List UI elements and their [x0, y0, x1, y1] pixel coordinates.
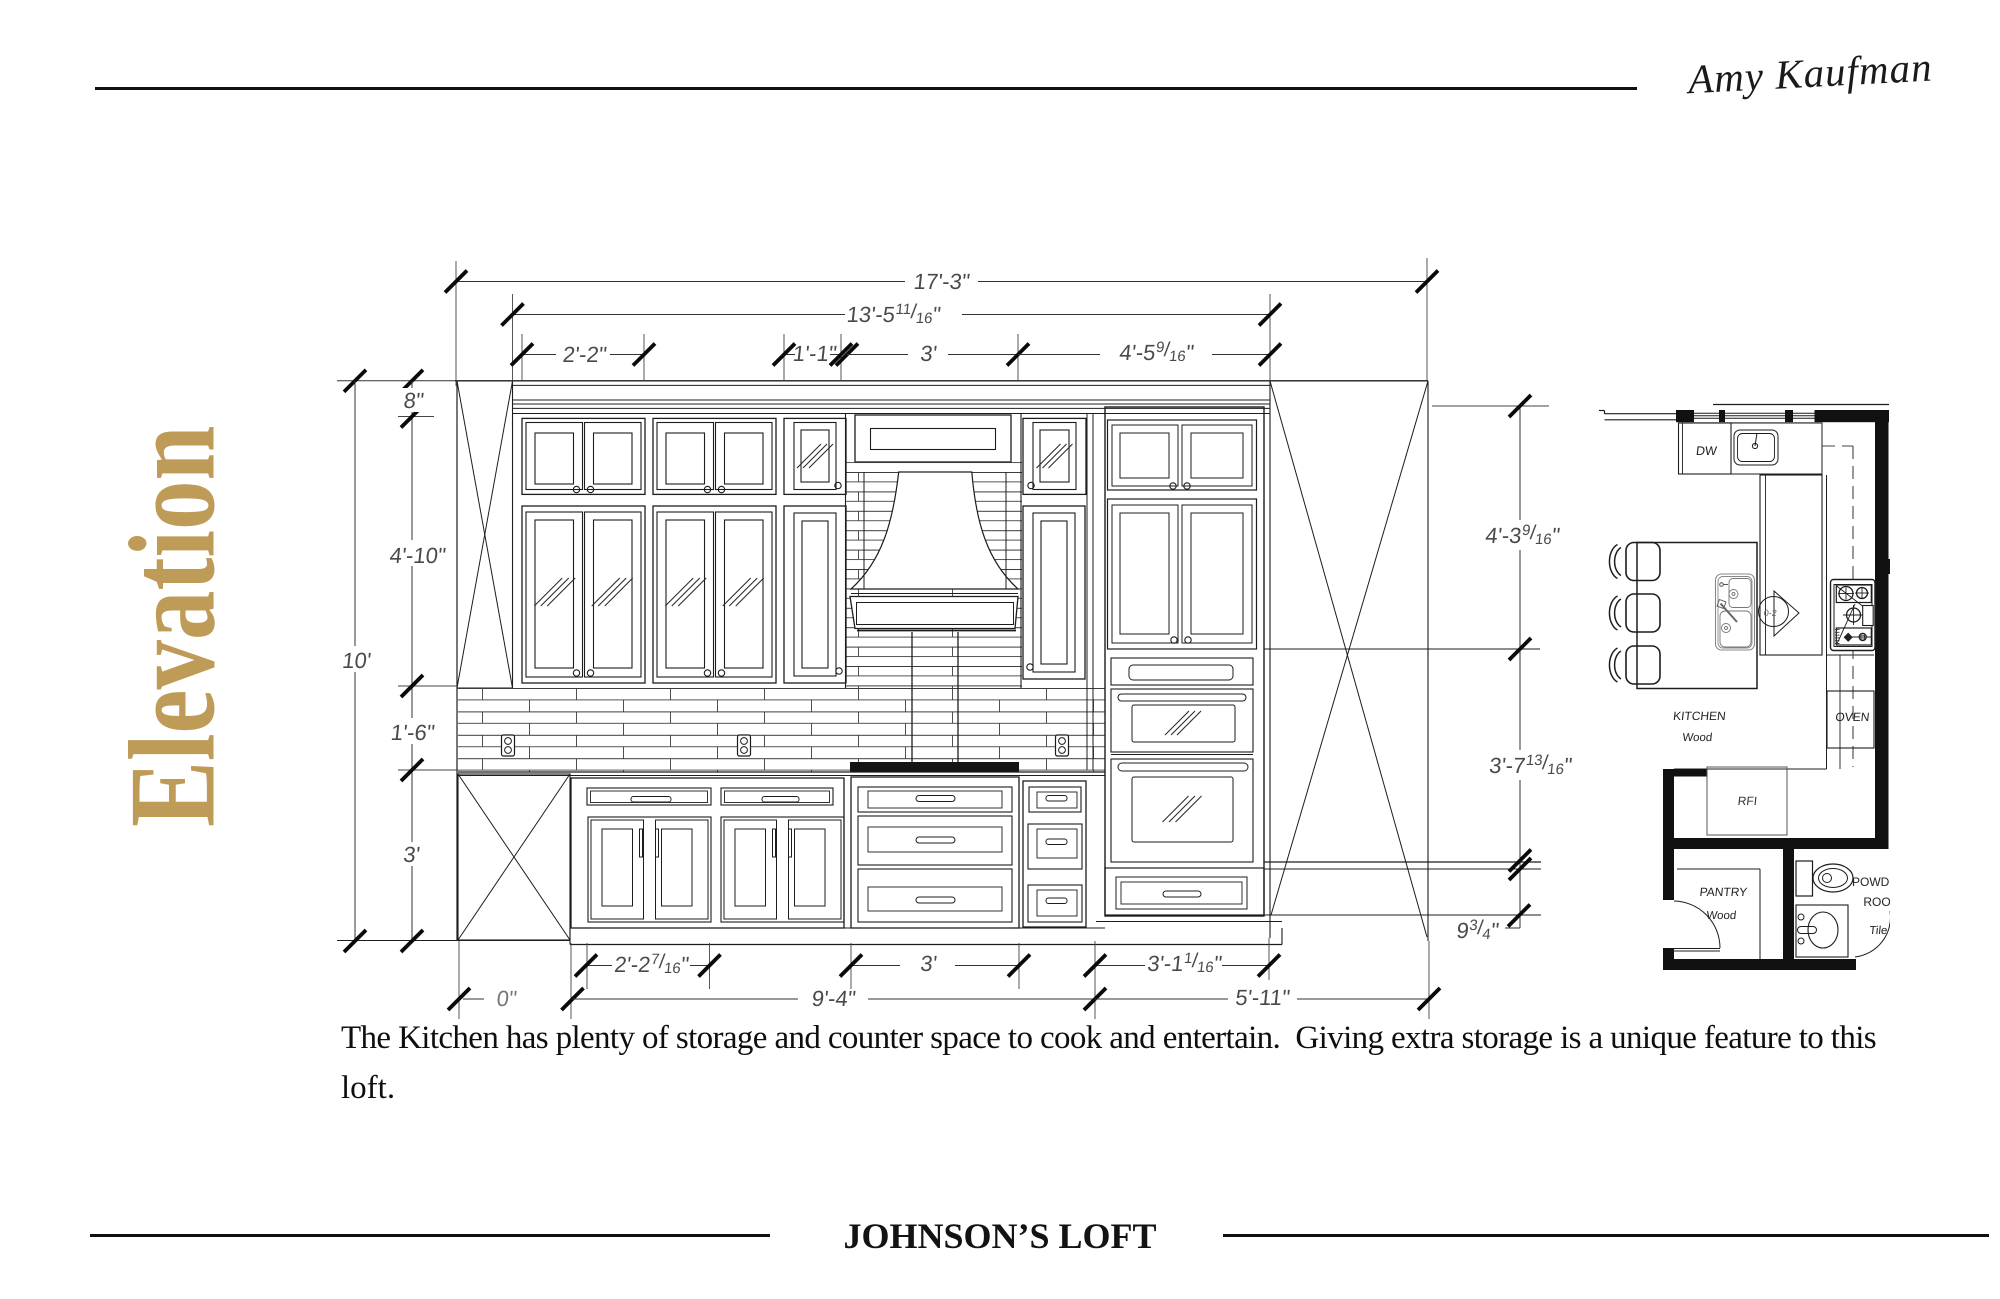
svg-text:1'-6": 1'-6"	[390, 720, 436, 745]
svg-text:1'-1": 1'-1"	[792, 341, 838, 366]
svg-text:5'-11": 5'-11"	[1234, 985, 1291, 1010]
svg-text:KITCHEN: KITCHEN	[1672, 709, 1726, 723]
svg-text:PANTRY: PANTRY	[1699, 885, 1748, 899]
svg-text:17'-3": 17'-3"	[912, 269, 971, 294]
svg-text:3': 3'	[919, 951, 938, 976]
svg-text:ROOM: ROOM	[1863, 895, 1900, 909]
svg-text:2'-2": 2'-2"	[562, 342, 608, 367]
svg-text:3': 3'	[919, 341, 938, 366]
svg-text:3': 3'	[402, 842, 421, 867]
svg-text:10': 10'	[341, 648, 372, 673]
svg-text:RFI: RFI	[1737, 794, 1758, 808]
svg-text:DW: DW	[1695, 444, 1717, 458]
svg-text:9'-4": 9'-4"	[811, 986, 857, 1011]
svg-text:8": 8"	[402, 388, 425, 413]
svg-text:2'-27/16": 2'-27/16"	[613, 951, 690, 977]
svg-text:Wood: Wood	[1682, 732, 1713, 744]
svg-text:4'-10": 4'-10"	[388, 543, 447, 568]
svg-text:0-2: 0-2	[1763, 608, 1777, 618]
svg-text:93/4": 93/4"	[1455, 917, 1500, 943]
svg-text:4'-59/16": 4'-59/16"	[1118, 339, 1195, 365]
svg-text:0": 0"	[495, 986, 518, 1011]
svg-text:13'-511/16": 13'-511/16"	[846, 301, 943, 327]
svg-text:Tile: Tile	[1869, 925, 1888, 937]
svg-text:3'-11/16": 3'-11/16"	[1146, 950, 1223, 976]
svg-text:POWDER: POWDER	[1852, 875, 1906, 889]
